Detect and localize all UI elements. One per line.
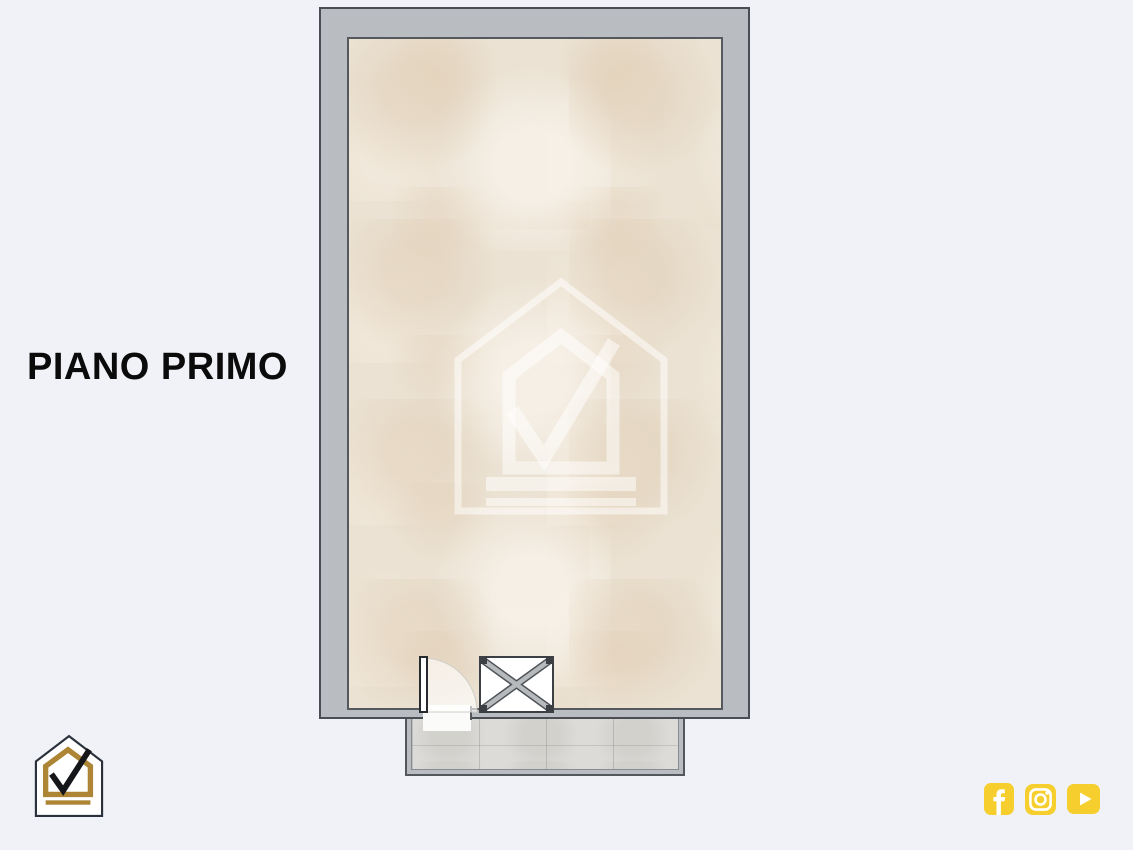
instagram-icon[interactable] — [1025, 784, 1056, 815]
social-links — [984, 783, 1100, 815]
youtube-icon[interactable] — [1067, 784, 1100, 814]
facebook-icon[interactable] — [984, 783, 1014, 815]
shaft-cross-icon — [481, 658, 552, 711]
door-leaf — [419, 656, 428, 713]
house-check-watermark-icon — [450, 278, 672, 516]
plan-title: PIANO PRIMO — [27, 346, 288, 389]
house-check-logo-icon — [33, 733, 105, 819]
shaft-cross-box — [479, 656, 554, 713]
door-swing-arc — [422, 656, 480, 714]
floorplan-page: PIANO PRIMO — [0, 0, 1133, 850]
